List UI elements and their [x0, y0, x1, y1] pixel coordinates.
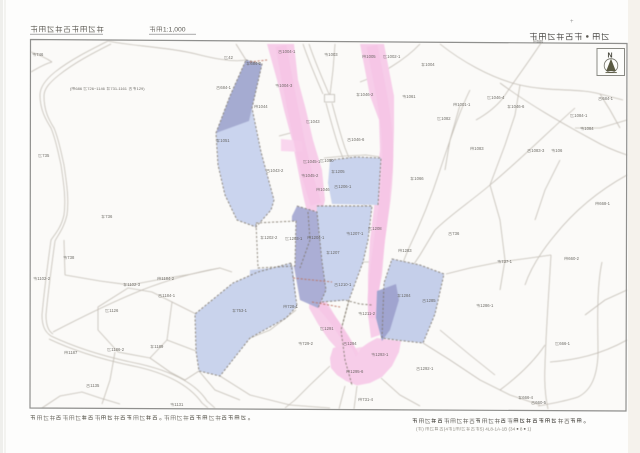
svg-text:1004-1: 1004-1	[282, 49, 296, 54]
svg-text:1004-3: 1004-3	[279, 83, 293, 88]
svg-text:660-2: 660-2	[568, 256, 579, 261]
svg-text:1046: 1046	[320, 187, 330, 192]
svg-text:1131: 1131	[174, 402, 184, 407]
svg-text:1003: 1003	[328, 52, 338, 57]
svg-text:1202-2: 1202-2	[264, 235, 278, 240]
svg-text:1284: 1284	[401, 293, 411, 298]
svg-text:(4: (4	[444, 427, 449, 432]
svg-text:1061: 1061	[406, 94, 416, 99]
svg-text:1184-1: 1184-1	[162, 293, 175, 298]
svg-text:1046-2: 1046-2	[360, 92, 374, 97]
svg-text:1187: 1187	[68, 350, 78, 355]
svg-text:1045-1: 1045-1	[307, 159, 321, 164]
svg-text:1211-2: 1211-2	[362, 311, 375, 316]
svg-text:1186-2: 1186-2	[111, 347, 124, 352]
svg-text:1005: 1005	[366, 54, 376, 59]
svg-text:1102-3: 1102-3	[127, 282, 140, 287]
svg-text:1285: 1285	[426, 298, 436, 303]
svg-text:1:1,000: 1:1,000	[163, 27, 186, 34]
svg-text:1295-6: 1295-6	[350, 369, 364, 374]
svg-text:1002-1: 1002-1	[387, 54, 401, 59]
svg-text:1286-1: 1286-1	[480, 303, 494, 308]
svg-text:1084: 1084	[584, 126, 594, 131]
svg-text:668-1: 668-1	[599, 201, 610, 206]
svg-text:1004: 1004	[425, 62, 435, 67]
svg-text:129): 129)	[137, 86, 146, 91]
svg-text:1294: 1294	[347, 341, 357, 346]
svg-text:1): 1)	[527, 427, 532, 432]
svg-text:726~1146: 726~1146	[87, 86, 105, 91]
svg-text:1082: 1082	[441, 116, 451, 121]
svg-text:1043-2: 1043-2	[270, 168, 284, 173]
svg-text:1283: 1283	[402, 248, 412, 253]
svg-text:1207-1: 1207-1	[350, 231, 364, 236]
svg-text:1210-1: 1210-1	[338, 282, 352, 287]
svg-text:686: 686	[537, 40, 543, 44]
svg-text:1: 1	[453, 427, 456, 432]
svg-text:684-2: 684-2	[250, 61, 261, 66]
svg-text:1184-2: 1184-2	[161, 276, 174, 281]
svg-text:42: 42	[228, 55, 233, 60]
svg-text:731-1161: 731-1161	[110, 86, 127, 91]
svg-text:1292-1: 1292-1	[420, 366, 434, 371]
svg-text:1046-6: 1046-6	[511, 104, 525, 109]
svg-text:+: +	[570, 19, 574, 25]
svg-text:731-4: 731-4	[362, 397, 373, 402]
svg-text:746: 746	[36, 52, 44, 57]
svg-text:1001-1: 1001-1	[457, 102, 471, 107]
svg-text:753-1: 753-1	[236, 308, 247, 313]
svg-text:1189: 1189	[154, 344, 164, 349]
svg-text:738: 738	[67, 255, 75, 260]
svg-text:1203-1: 1203-1	[289, 236, 303, 241]
svg-text:1293-1: 1293-1	[375, 352, 389, 357]
svg-text:1084-1: 1084-1	[574, 113, 588, 118]
svg-text:735: 735	[42, 153, 50, 158]
svg-text:1135: 1135	[90, 383, 100, 388]
svg-text:1083-3: 1083-3	[531, 148, 545, 153]
svg-text:1204-1: 1204-1	[311, 235, 325, 240]
svg-text:736: 736	[452, 231, 460, 236]
svg-text:1046-6: 1046-6	[351, 137, 365, 142]
svg-text:737-1: 737-1	[501, 259, 512, 264]
svg-text:1046-4: 1046-4	[491, 95, 505, 100]
svg-text:1205: 1205	[335, 169, 345, 174]
svg-text:1044: 1044	[258, 104, 268, 109]
svg-text:729-2: 729-2	[302, 341, 313, 346]
svg-text:1083: 1083	[474, 146, 484, 151]
svg-text:1043: 1043	[310, 119, 320, 124]
svg-text:5) 4L8-1A-1B (34: 5) 4L8-1A-1B (34	[480, 427, 516, 432]
svg-text:1051: 1051	[220, 138, 230, 143]
svg-text:8: 8	[520, 427, 523, 432]
svg-text:1208: 1208	[372, 226, 382, 231]
svg-text:1045-2: 1045-2	[305, 173, 319, 178]
svg-text:1207: 1207	[330, 250, 340, 255]
svg-text:666-4: 666-4	[522, 395, 533, 400]
svg-text:106: 106	[555, 148, 563, 153]
svg-text:736: 736	[105, 214, 113, 219]
svg-text:1291: 1291	[324, 326, 334, 331]
svg-text:1102-2: 1102-2	[37, 276, 50, 281]
svg-text:686: 686	[75, 86, 82, 91]
svg-text:660-5: 660-5	[535, 400, 546, 405]
svg-text:1126: 1126	[109, 308, 119, 313]
svg-text:684-1: 684-1	[602, 96, 613, 101]
svg-text:684-1: 684-1	[220, 85, 231, 90]
svg-text:666-1: 666-1	[559, 341, 570, 346]
svg-text:1206-1: 1206-1	[338, 184, 352, 189]
svg-text:1066: 1066	[414, 176, 424, 181]
svg-text:1050: 1050	[324, 158, 334, 163]
svg-text:728-1: 728-1	[287, 304, 298, 309]
